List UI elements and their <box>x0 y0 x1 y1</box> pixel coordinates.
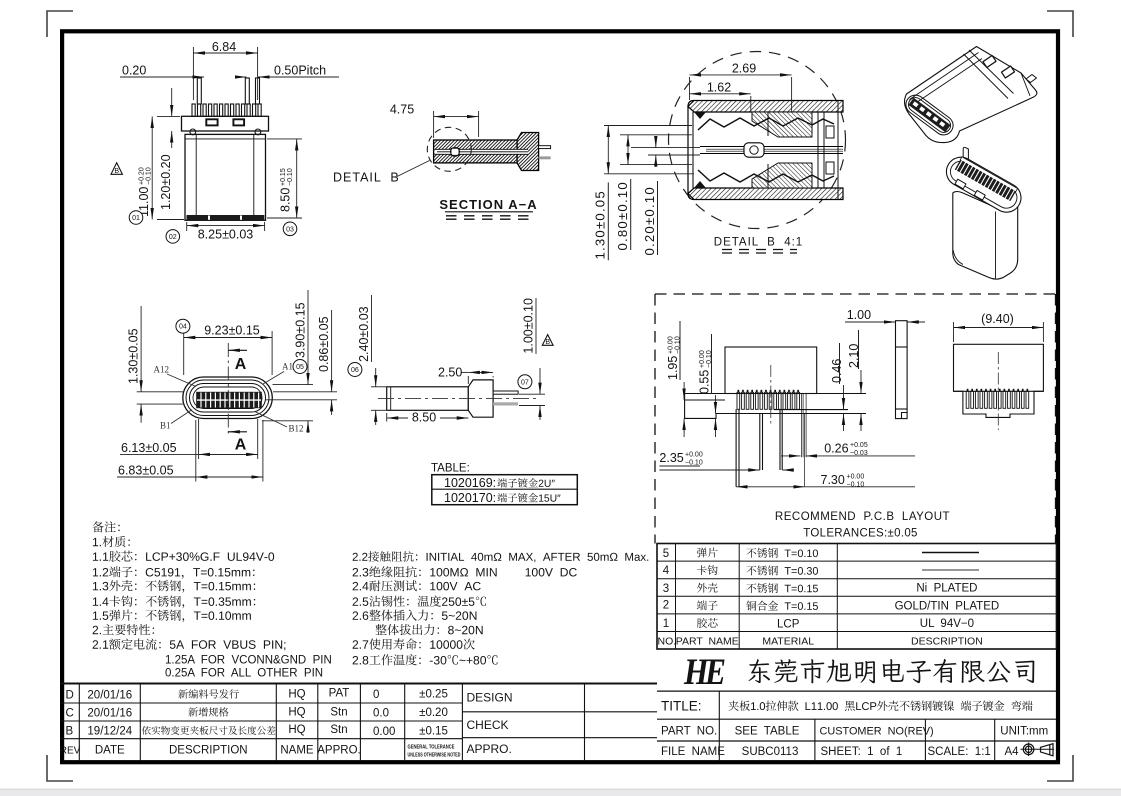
svg-text:−0.10: −0.10 <box>675 336 682 354</box>
svg-text:UNIT:mm: UNIT:mm <box>1000 726 1048 738</box>
svg-text:0.00: 0.00 <box>373 726 395 738</box>
svg-text:19/12/24: 19/12/24 <box>87 726 132 738</box>
svg-text:04: 04 <box>179 324 187 331</box>
svg-text:Ni PLATED: Ni PLATED <box>916 583 977 595</box>
svg-text:UNLESS OTHERWISE NOTED: UNLESS OTHERWISE NOTED <box>408 753 461 759</box>
svg-text:GOLD/TIN PLATED: GOLD/TIN PLATED <box>895 600 1000 612</box>
svg-text:06: 06 <box>351 367 359 374</box>
svg-text:A12: A12 <box>154 365 170 375</box>
svg-text:±0.15: ±0.15 <box>419 726 448 738</box>
svg-text:APPRO.: APPRO. <box>467 742 512 756</box>
svg-text:Stn: Stn <box>330 724 347 736</box>
svg-text:B: B <box>545 339 550 346</box>
svg-text:0.86±0.05: 0.86±0.05 <box>317 316 331 372</box>
svg-text:3.90±0.15: 3.90±0.15 <box>294 302 308 358</box>
svg-text:0.46: 0.46 <box>830 359 844 383</box>
svg-text:TABLE:: TABLE: <box>431 463 470 475</box>
svg-text:1020169:: 1020169: <box>444 476 496 490</box>
svg-text:0.80±0.10: 0.80±0.10 <box>615 181 630 250</box>
svg-text:4.75: 4.75 <box>390 103 414 117</box>
svg-text:8.50: 8.50 <box>412 411 436 425</box>
svg-text:MATERIAL: MATERIAL <box>762 636 814 648</box>
svg-text:±0.20: ±0.20 <box>419 707 448 719</box>
svg-text:NO.: NO. <box>658 636 677 648</box>
svg-text:−0.10: −0.10 <box>706 350 713 368</box>
svg-text:2.35: 2.35 <box>659 451 683 465</box>
svg-text:C: C <box>66 708 74 720</box>
svg-text:HQ: HQ <box>288 689 305 701</box>
svg-text:FILE NAME: FILE NAME <box>661 746 725 758</box>
svg-text:DATE: DATE <box>95 745 125 757</box>
svg-text:02: 02 <box>169 234 177 241</box>
svg-text:0.0: 0.0 <box>373 708 389 720</box>
svg-text:(9.40): (9.40) <box>981 312 1014 326</box>
svg-text:0.25A FOR ALL OTHER PIN: 0.25A FOR ALL OTHER PIN <box>165 668 323 680</box>
svg-text:4: 4 <box>663 565 670 577</box>
svg-text:SHEET: 1 of 1: SHEET: 1 of 1 <box>821 746 903 758</box>
svg-text:PART NO.: PART NO. <box>661 726 717 738</box>
svg-text:2: 2 <box>663 600 669 612</box>
svg-text:0.50Pitch: 0.50Pitch <box>274 64 326 78</box>
svg-text:SCALE: 1:1: SCALE: 1:1 <box>928 746 991 758</box>
svg-text:+0.00: +0.00 <box>685 452 703 459</box>
svg-text:A4: A4 <box>1005 746 1020 758</box>
svg-text:1.95: 1.95 <box>666 356 680 380</box>
svg-text:−0.10: −0.10 <box>685 460 703 467</box>
svg-text:0.20±0.10: 0.20±0.10 <box>642 186 657 255</box>
svg-text:A1: A1 <box>282 362 293 372</box>
svg-text:7.30: 7.30 <box>821 473 845 487</box>
svg-text:1: 1 <box>663 618 669 630</box>
svg-text:+0.00: +0.00 <box>847 474 865 481</box>
svg-text:DESIGN: DESIGN <box>467 691 513 705</box>
svg-text:20/01/16: 20/01/16 <box>87 708 132 720</box>
svg-text:DETAIL B: DETAIL B <box>333 171 400 185</box>
svg-text:6.83±0.05: 6.83±0.05 <box>118 464 174 478</box>
svg-text:−0.10: −0.10 <box>287 168 294 186</box>
svg-text:1.00: 1.00 <box>847 308 871 322</box>
svg-text:A: A <box>235 437 247 454</box>
svg-text:HE: HE <box>683 652 725 693</box>
svg-text:±0.25: ±0.25 <box>419 689 448 701</box>
svg-text:07: 07 <box>521 379 529 386</box>
svg-text:CHECK: CHECK <box>467 718 509 732</box>
svg-text:B: B <box>66 726 74 738</box>
svg-text:20/01/16: 20/01/16 <box>87 690 132 702</box>
svg-text:SEE TABLE: SEE TABLE <box>735 726 800 738</box>
svg-text:03: 03 <box>286 226 294 233</box>
svg-text:CUSTOMER NO(REV): CUSTOMER NO(REV) <box>820 726 934 738</box>
svg-text:−0.10: −0.10 <box>847 482 865 489</box>
svg-text:HQ: HQ <box>288 724 305 736</box>
svg-text:A: A <box>235 356 247 373</box>
svg-text:−0.10: −0.10 <box>146 167 153 185</box>
svg-text:0.26: 0.26 <box>824 442 848 456</box>
svg-text:2.40±0.03: 2.40±0.03 <box>357 306 371 362</box>
svg-text:PART NAME: PART NAME <box>676 636 739 648</box>
svg-text:6.13±0.05: 6.13±0.05 <box>121 441 177 455</box>
svg-text:DETAIL B 4:1: DETAIL B 4:1 <box>714 237 803 249</box>
svg-text:2.50: 2.50 <box>438 365 462 379</box>
svg-text:0: 0 <box>373 689 379 701</box>
svg-text:1020170:: 1020170: <box>444 491 496 505</box>
svg-text:D: D <box>66 690 74 702</box>
svg-text:SUBC0113: SUBC0113 <box>742 746 799 758</box>
svg-text:B12: B12 <box>289 424 304 434</box>
svg-text:8.50: 8.50 <box>279 188 293 212</box>
svg-text:3: 3 <box>663 583 669 595</box>
svg-text:UL 94V−0: UL 94V−0 <box>920 618 974 630</box>
svg-text:1.62: 1.62 <box>707 81 731 95</box>
svg-text:05: 05 <box>296 364 304 371</box>
svg-text:+0.00: +0.00 <box>668 336 675 354</box>
svg-text:DESCRIPTION: DESCRIPTION <box>169 745 248 757</box>
svg-text:GENERAL TOLERANCE: GENERAL TOLERANCE <box>408 745 455 751</box>
svg-text:2.10: 2.10 <box>847 344 861 368</box>
svg-text:TOLERANCES:±0.05: TOLERANCES:±0.05 <box>803 528 917 540</box>
svg-text:01: 01 <box>132 215 140 222</box>
svg-text:1.30±0.05: 1.30±0.05 <box>593 190 608 259</box>
svg-text:8.25±0.03: 8.25±0.03 <box>198 228 254 242</box>
svg-text:RECOMMEND P.C.B LAYOUT: RECOMMEND P.C.B LAYOUT <box>775 511 950 523</box>
svg-text:−0.03: −0.03 <box>850 450 868 457</box>
svg-text:9.23±0.15: 9.23±0.15 <box>204 324 260 338</box>
svg-text:APPRO.: APPRO. <box>317 745 360 757</box>
svg-text:2.69: 2.69 <box>732 62 756 76</box>
svg-text:1.30±0.05: 1.30±0.05 <box>127 328 141 384</box>
svg-text:0.55: 0.55 <box>698 370 712 394</box>
svg-text:HQ: HQ <box>288 707 305 719</box>
svg-text:1.20±0.20: 1.20±0.20 <box>159 154 173 210</box>
svg-text:REV: REV <box>60 746 81 757</box>
svg-text:DESCRIPTION: DESCRIPTION <box>911 636 983 648</box>
svg-text:NAME: NAME <box>280 745 314 757</box>
svg-text:1.00±0.10: 1.00±0.10 <box>522 298 536 354</box>
svg-text:1.25A FOR VCONN&GND PIN: 1.25A FOR VCONN&GND PIN <box>165 654 332 666</box>
svg-text:TITLE:: TITLE: <box>661 699 702 714</box>
svg-text:PAT: PAT <box>329 688 350 700</box>
svg-text:+0.20: +0.20 <box>139 167 146 185</box>
svg-text:+0.15: +0.15 <box>280 168 287 186</box>
svg-text:+0.05: +0.05 <box>850 442 868 449</box>
svg-text:6.84: 6.84 <box>212 40 236 54</box>
svg-text:B1: B1 <box>160 421 171 431</box>
svg-text:B: B <box>114 168 119 175</box>
svg-text:SECTION A−A: SECTION A−A <box>439 197 537 212</box>
svg-text:0.20: 0.20 <box>122 64 146 78</box>
svg-text:LCP: LCP <box>777 618 800 630</box>
svg-text:+0.00: +0.00 <box>699 350 706 368</box>
svg-text:5: 5 <box>663 548 669 560</box>
svg-text:Stn: Stn <box>330 707 347 719</box>
